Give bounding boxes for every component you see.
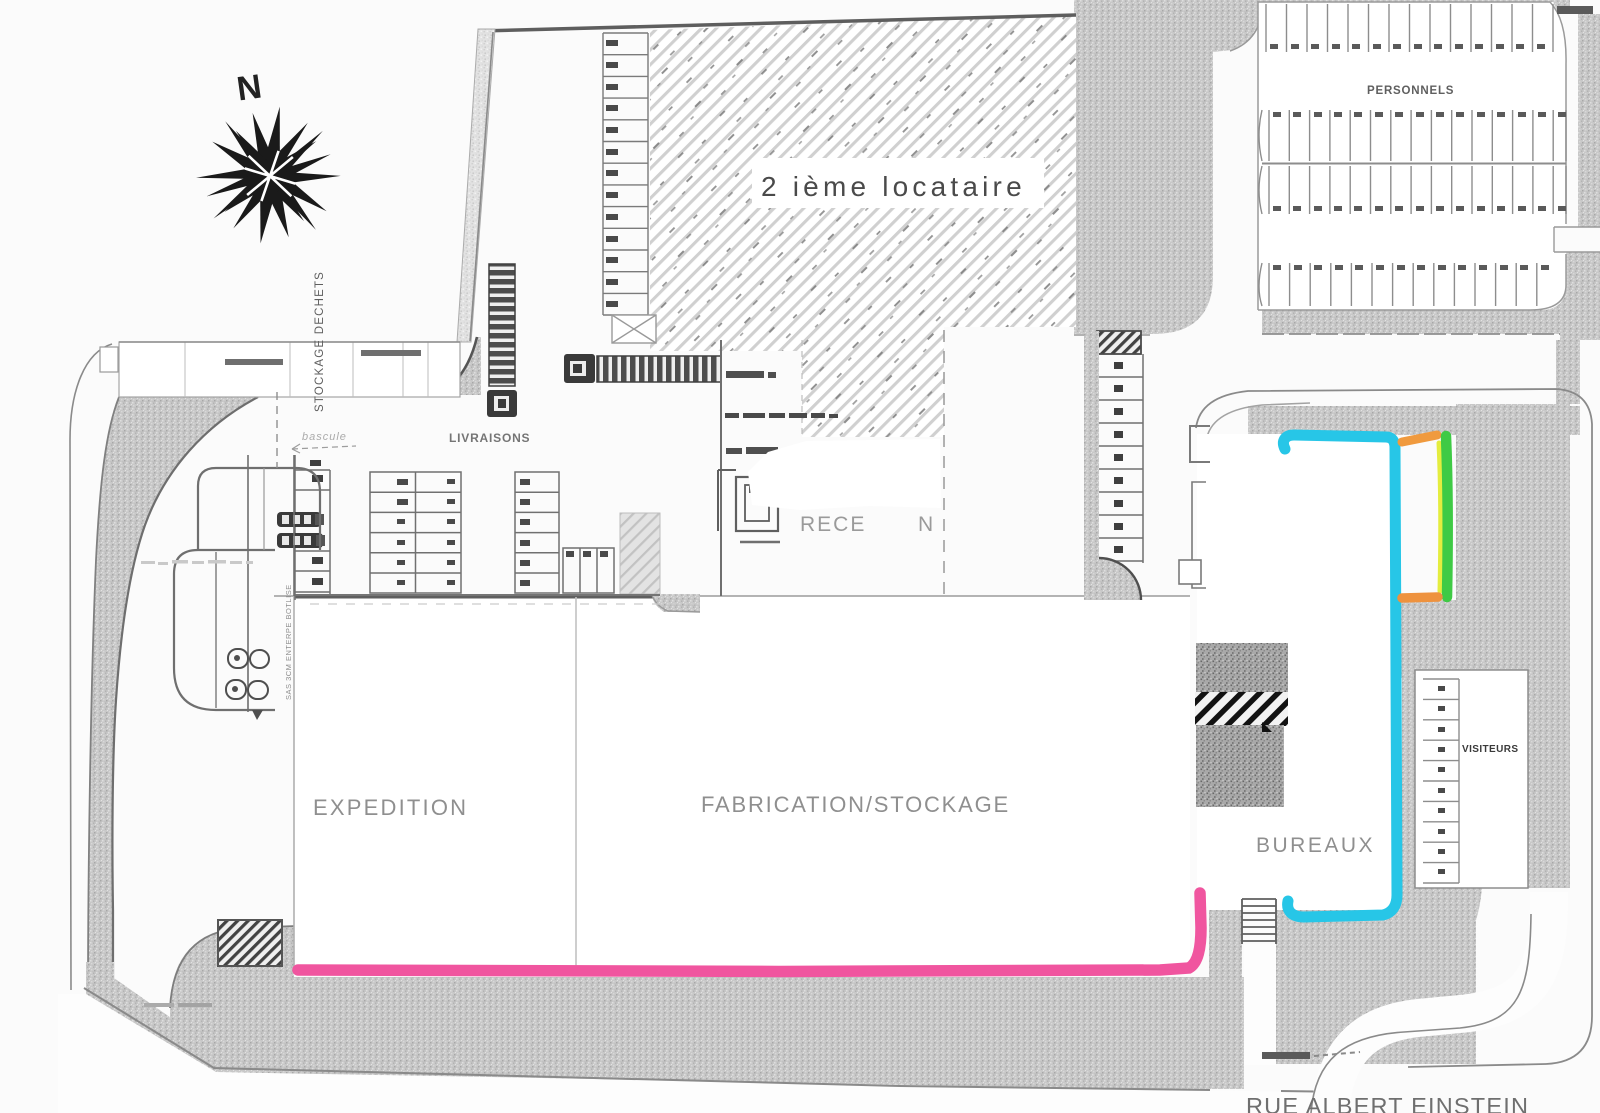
svg-text:SAS 3CM ENTERPE BOTLISE: SAS 3CM ENTERPE BOTLISE <box>284 584 293 700</box>
svg-text:STOCKAGE DECHETS: STOCKAGE DECHETS <box>314 271 326 412</box>
svg-text:N: N <box>234 67 264 108</box>
svg-text:LIVRAISONS: LIVRAISONS <box>449 431 530 445</box>
svg-text:RUE ALBERT EINSTEIN: RUE ALBERT EINSTEIN <box>1246 1093 1529 1113</box>
svg-text:BUREAUX: BUREAUX <box>1256 834 1375 857</box>
svg-text:FABRICATION/STOCKAGE: FABRICATION/STOCKAGE <box>701 792 1010 817</box>
svg-text:N: N <box>918 513 935 536</box>
svg-text:EXPEDITION: EXPEDITION <box>313 795 468 820</box>
svg-text:2 ième locataire: 2 ième locataire <box>761 171 1026 202</box>
svg-text:RECE: RECE <box>800 513 866 536</box>
svg-text:VISITEURS: VISITEURS <box>1462 744 1518 755</box>
svg-text:PERSONNELS: PERSONNELS <box>1367 85 1454 97</box>
svg-text:bascule: bascule <box>302 431 347 443</box>
